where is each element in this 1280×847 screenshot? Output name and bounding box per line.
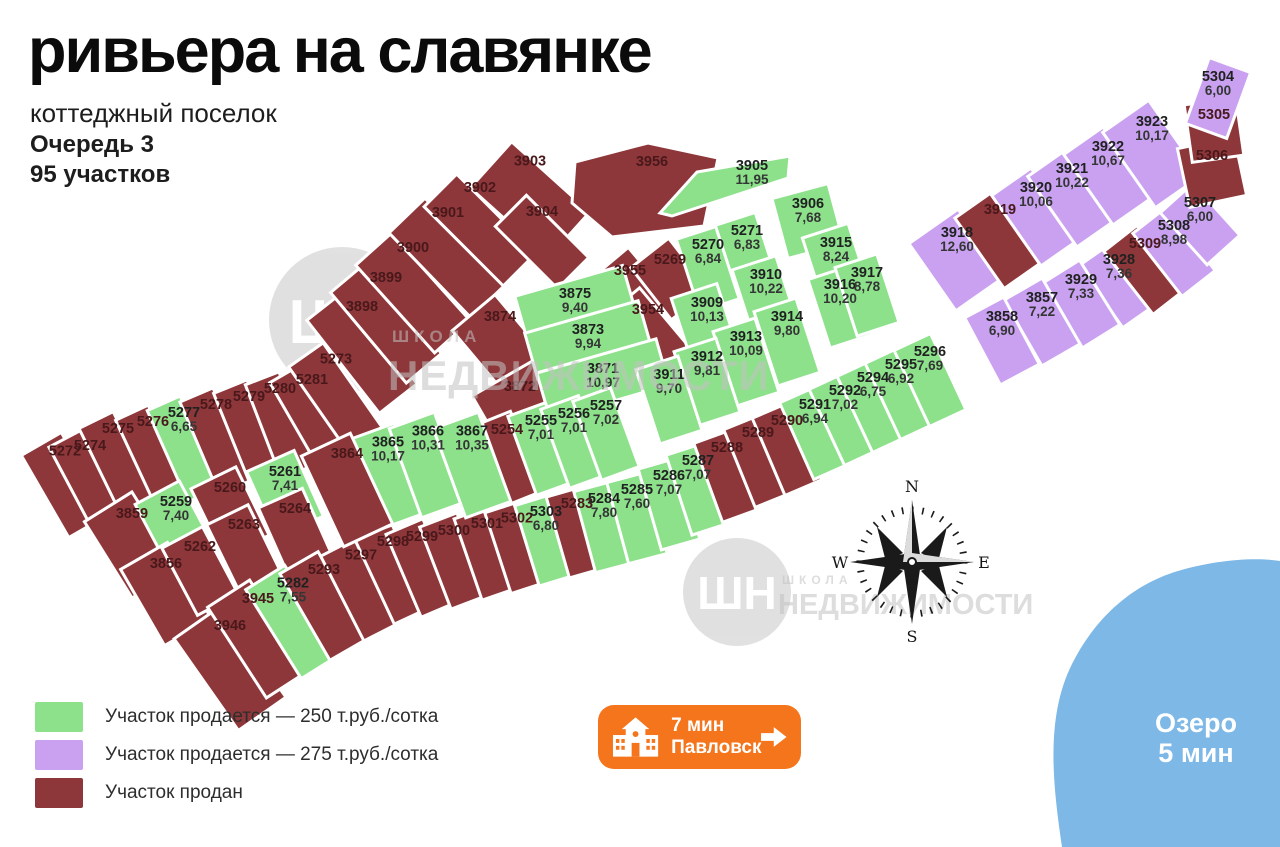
pavlovsk-badge[interactable]: 7 мин Павловск [598,705,801,769]
legend-row-sold: Участок продан [35,778,438,808]
watermark-big-2: НЕДВИЖИМОСТИ [778,589,1033,621]
legend-swatch-red [35,778,83,808]
station-building-icon [612,715,659,759]
compass-letter-w: W [832,553,849,572]
legend: Участок продается — 250 т.руб./сотка Уча… [35,702,438,816]
legend-row-sale-275: Участок продается — 275 т.руб./сотка [35,740,438,770]
badge-time: 7 мин [671,715,761,737]
legend-row-sale-250: Участок продается — 250 т.руб./сотка [35,702,438,732]
watermark-small-1: ШКОЛА [392,327,481,346]
plots-count-label: 95 участков [30,161,651,189]
badge-place: Павловск [671,737,761,759]
arrow-right-icon [761,727,787,747]
badge-texts: 7 мин Павловск [671,715,761,759]
watermark-big-1: НЕДВИЖИМОСТИ [388,352,770,399]
watermark-logo-text-2: ШН [697,567,776,619]
compass-letter-s: S [907,627,918,646]
lake-label-line1: Озеро [1155,708,1237,738]
compass-letter-e: E [978,553,990,572]
watermark-small-2: ШКОЛА [782,573,853,587]
legend-swatch-purple [35,740,83,770]
legend-label-sold: Участок продан [105,782,243,804]
legend-swatch-green [35,702,83,732]
header-block: ривьера на славянке коттеджный поселок О… [28,18,651,189]
phase-label: Очередь 3 [30,131,651,159]
lake: Озеро 5 мин [1053,559,1280,847]
site-plan-page: ривьера на славянке коттеджный поселок О… [0,0,1280,847]
lake-shape [1053,559,1280,847]
legend-label-sale-275: Участок продается — 275 т.руб./сотка [105,744,438,766]
subtitle: коттеджный поселок [30,98,651,129]
compass-letter-n: N [905,477,919,496]
lake-label-line2: 5 мин [1158,738,1233,768]
page-title: ривьера на славянке [28,18,651,84]
legend-label-sale-250: Участок продается — 250 т.руб./сотка [105,706,438,728]
